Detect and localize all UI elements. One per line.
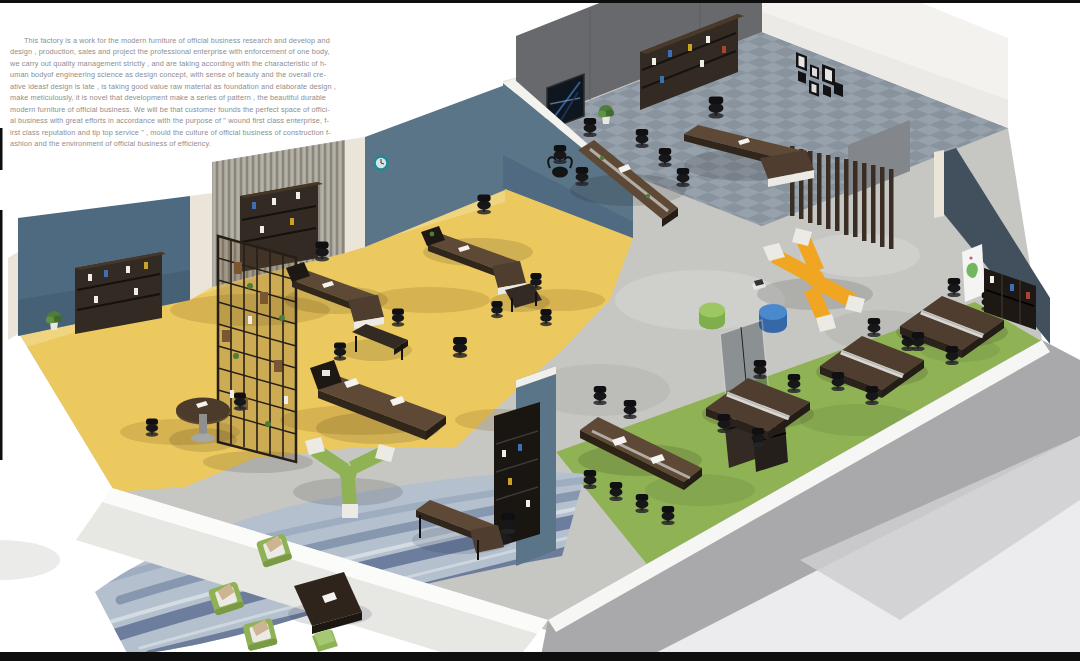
paragraph-line: ative ideasf design is late , is taking … xyxy=(10,81,306,92)
paragraph-line: we carry out quality management strictly… xyxy=(10,58,306,69)
paragraph-line: uman bodyof engineering science as desig… xyxy=(10,69,306,80)
paragraph-line: irst class reputation and tip top servic… xyxy=(10,127,306,138)
paragraph-line: design , production, sales and project t… xyxy=(10,46,306,57)
poster xyxy=(962,244,985,302)
paragraph-line: ashion and the environment of official b… xyxy=(10,138,306,149)
pillar-1 xyxy=(190,193,212,300)
paragraph-line: make meticulously, it is novel that deve… xyxy=(10,92,306,103)
pillar-2 xyxy=(345,137,365,253)
intro-paragraph: This factory is a work for the modern fu… xyxy=(10,35,306,150)
wall-clock xyxy=(375,157,388,170)
green-ottoman xyxy=(699,303,725,330)
media-wall-cabinet xyxy=(494,402,540,548)
paragraph-line: This factory is a work for the modern fu… xyxy=(10,35,306,46)
left-end-pillar xyxy=(8,252,18,340)
paragraph-line: modern furniture of official business. W… xyxy=(10,104,306,115)
office-showroom-render: This factory is a work for the modern fu… xyxy=(0,0,1080,661)
paragraph-line: al business with great efforts in accord… xyxy=(10,115,306,126)
